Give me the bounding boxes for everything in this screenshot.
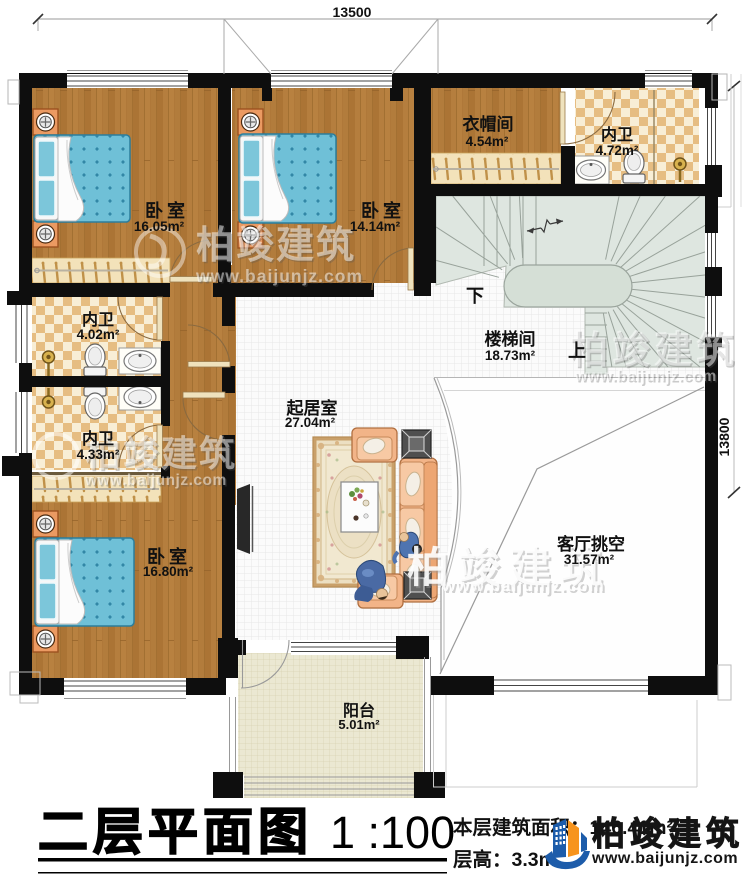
svg-text:13500: 13500: [333, 4, 372, 20]
svg-text:www.baijunjz.com: www.baijunjz.com: [84, 472, 227, 489]
svg-text:上: 上: [568, 341, 586, 361]
svg-text:柏竣建筑: 柏竣建筑: [196, 225, 356, 267]
svg-text:楼梯间: 楼梯间: [485, 329, 536, 349]
svg-text:14.14m²: 14.14m²: [350, 219, 401, 234]
svg-text:柏竣建筑: 柏竣建筑: [592, 815, 744, 852]
svg-text:27.04m²: 27.04m²: [285, 415, 336, 430]
svg-text:1 :100: 1 :100: [330, 807, 455, 858]
svg-text:www.baijunjz.com: www.baijunjz.com: [441, 576, 605, 595]
svg-text:柏竣建筑: 柏竣建筑: [570, 330, 738, 372]
svg-text:客厅挑空: 客厅挑空: [556, 534, 625, 554]
svg-text:内卫: 内卫: [82, 429, 114, 448]
svg-text:4.72m²: 4.72m²: [596, 143, 639, 158]
svg-text:内卫: 内卫: [601, 125, 633, 144]
svg-text:卧室: 卧室: [361, 200, 405, 221]
svg-text:下: 下: [466, 286, 484, 306]
svg-text:16.80m²: 16.80m²: [143, 564, 194, 579]
svg-text:18.73m²: 18.73m²: [485, 348, 536, 363]
svg-text:5.01m²: 5.01m²: [338, 717, 380, 732]
svg-text:13800: 13800: [716, 417, 732, 456]
svg-text:www.baijunjz.com: www.baijunjz.com: [591, 850, 738, 867]
svg-text:二层平面图: 二层平面图: [38, 804, 313, 860]
svg-text:卧室: 卧室: [145, 200, 189, 221]
svg-text:衣帽间: 衣帽间: [463, 114, 514, 134]
svg-text:www.baijunjz.com: www.baijunjz.com: [574, 368, 717, 385]
svg-text:层高：3.3m: 层高：3.3m: [453, 848, 556, 871]
svg-text:www.baijunjz.com: www.baijunjz.com: [195, 266, 363, 286]
svg-text:4.54m²: 4.54m²: [466, 134, 509, 149]
svg-text:4.02m²: 4.02m²: [77, 327, 120, 342]
svg-text:31.57m²: 31.57m²: [564, 552, 615, 567]
svg-text:4.33m²: 4.33m²: [77, 447, 120, 462]
svg-text:16.05m²: 16.05m²: [134, 219, 185, 234]
